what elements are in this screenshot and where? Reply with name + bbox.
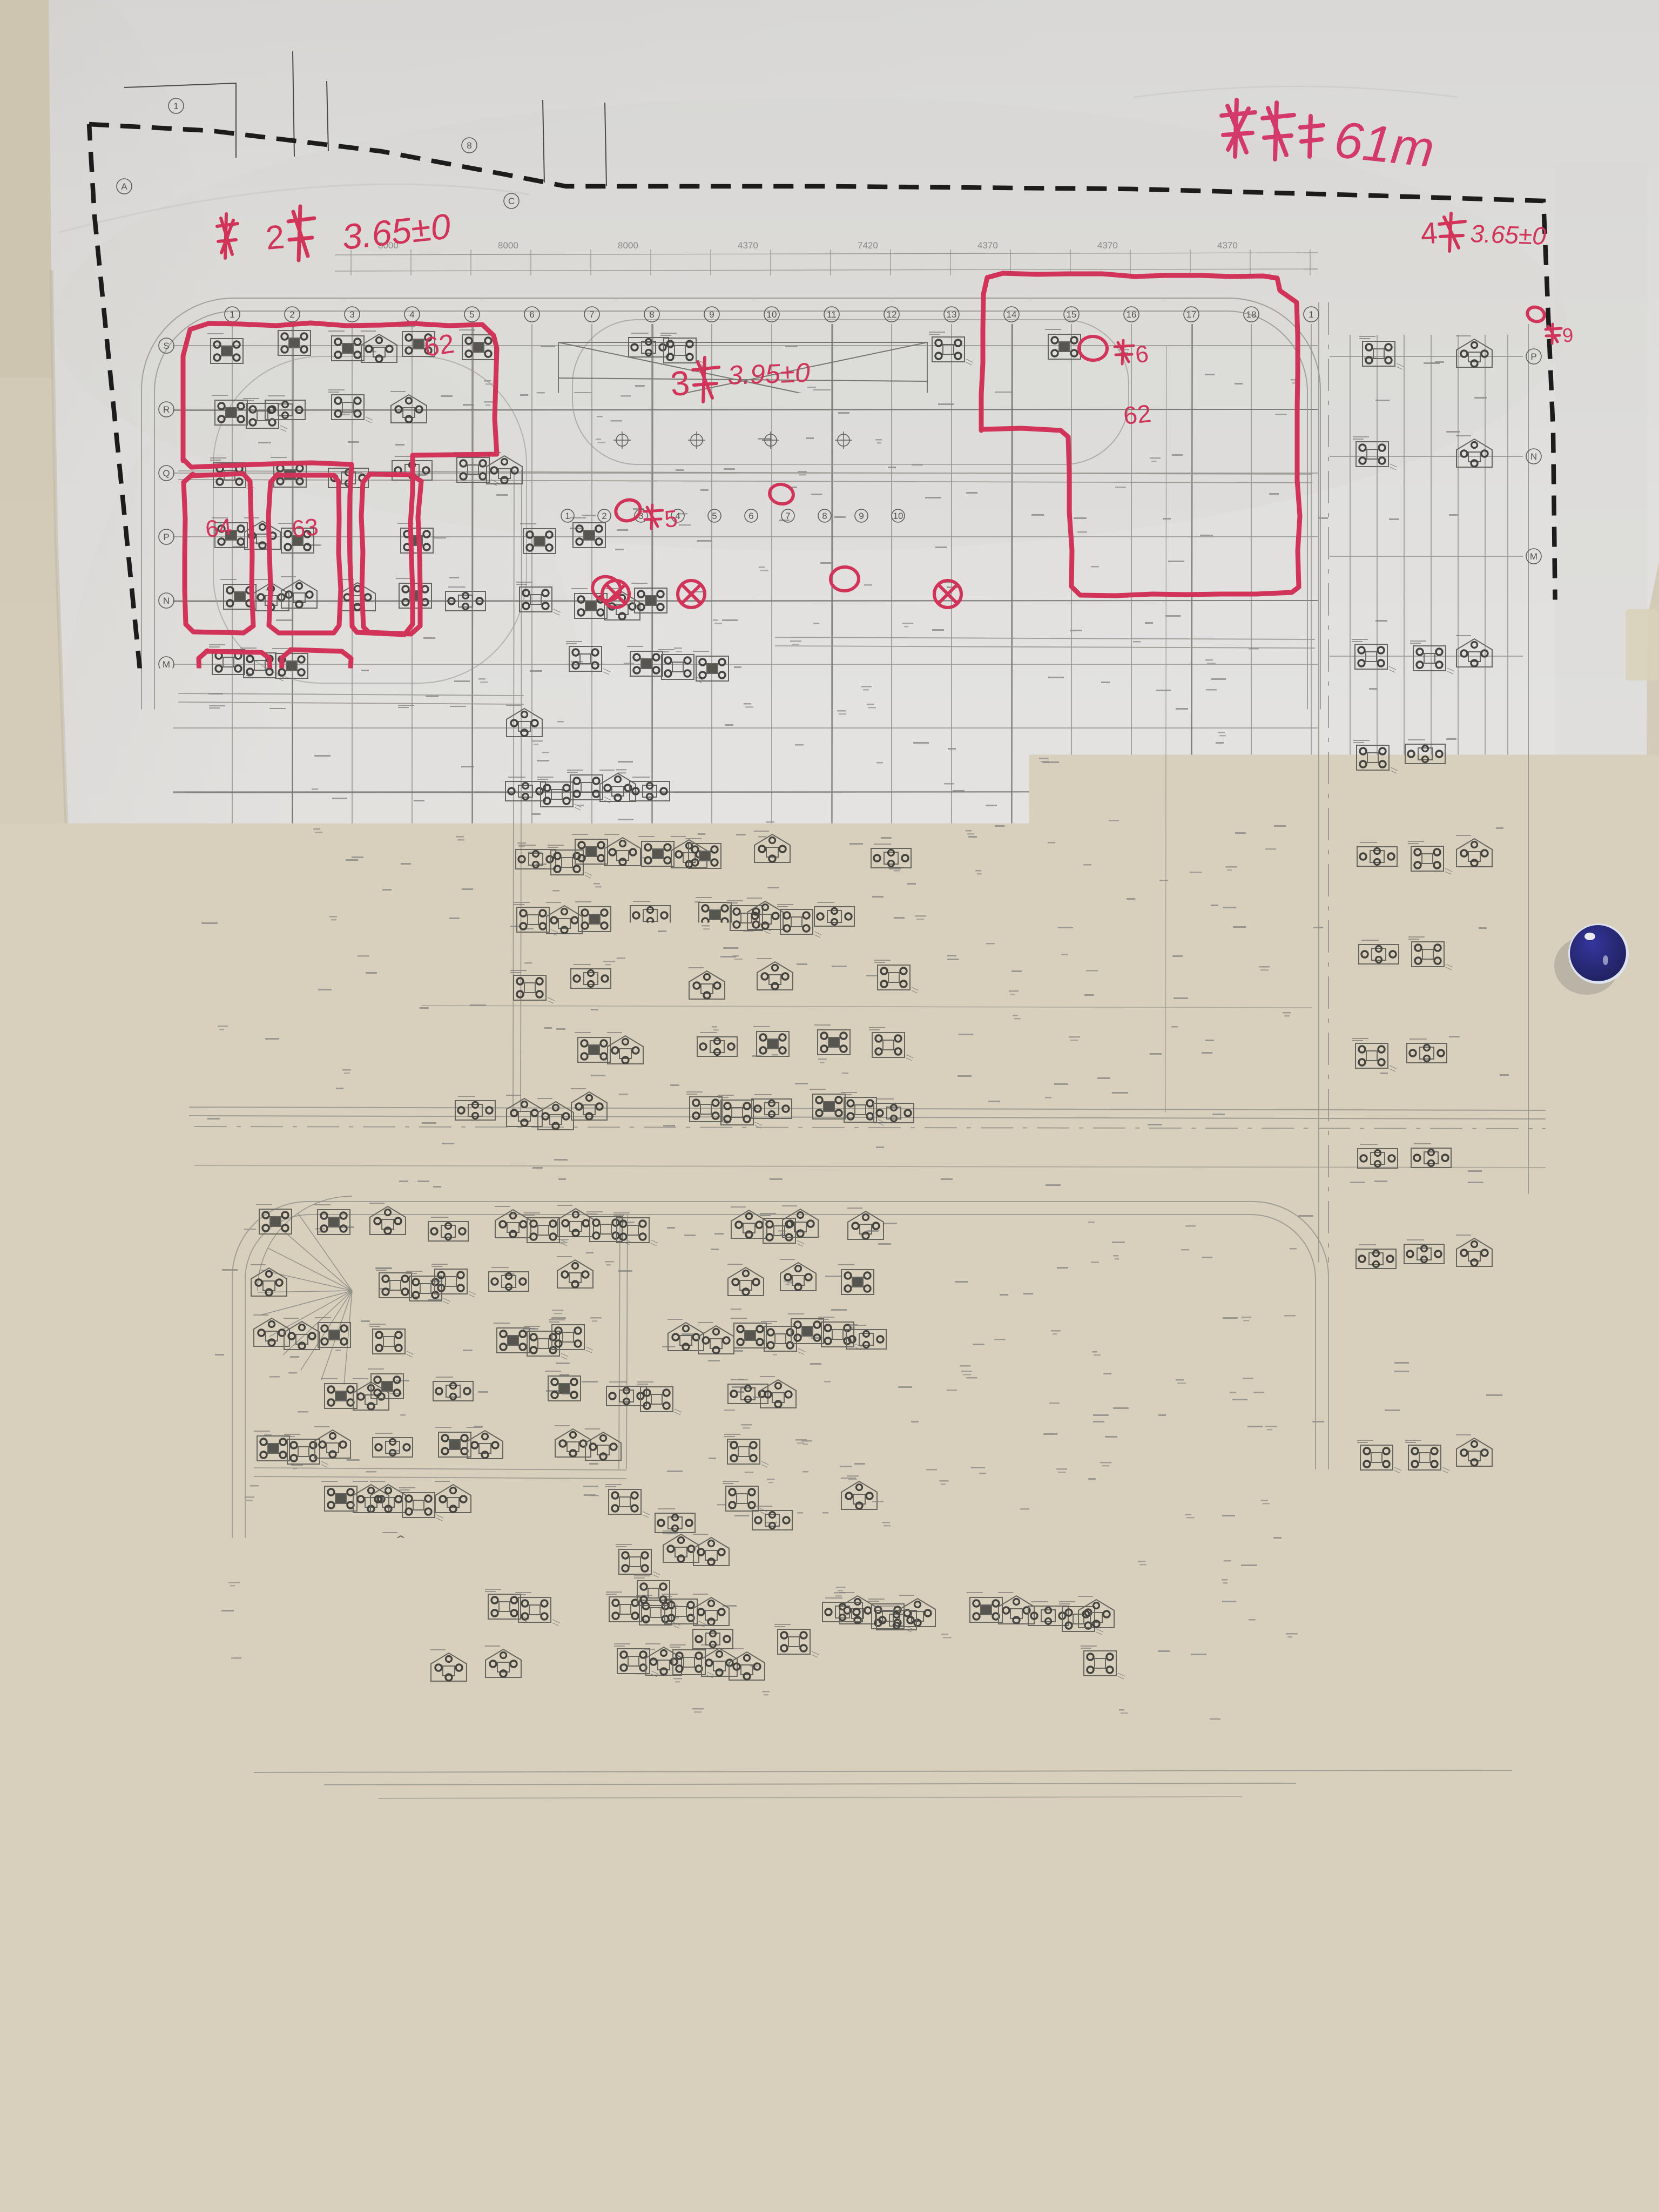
svg-text:127: 127 [875, 1617, 901, 1637]
svg-text:2: 2 [264, 218, 286, 257]
svg-text:1.6: 1.6 [748, 1636, 770, 1655]
svg-text:6: 6 [529, 309, 534, 320]
svg-text:9: 9 [1562, 324, 1575, 347]
svg-text:63: 63 [217, 694, 244, 722]
svg-text:3.65±0: 3.65±0 [413, 1151, 496, 1184]
svg-text:63: 63 [1141, 1343, 1171, 1374]
svg-text:7: 7 [624, 1757, 629, 1767]
svg-text:R: R [163, 404, 170, 415]
svg-text:L: L [1531, 651, 1536, 662]
svg-text:H: H [1530, 951, 1537, 961]
svg-text:5: 5 [720, 1668, 725, 1678]
svg-text:L: L [164, 723, 168, 733]
svg-text:1: 1 [565, 511, 570, 521]
svg-text:7: 7 [785, 511, 790, 521]
svg-text:K: K [1530, 751, 1537, 761]
svg-text:63: 63 [463, 1616, 490, 1642]
svg-text:18: 18 [1246, 309, 1257, 320]
svg-text:12: 12 [928, 1475, 938, 1486]
svg-text:12: 12 [887, 309, 897, 320]
svg-text:A: A [121, 181, 127, 192]
svg-text:18: 18 [1271, 1205, 1282, 1215]
svg-text:9: 9 [897, 1668, 902, 1678]
svg-text:8: 8 [467, 140, 471, 151]
svg-text:R: R [1530, 1451, 1537, 1461]
svg-text:3.65±0: 3.65±0 [1470, 219, 1547, 250]
svg-text:10: 10 [939, 1668, 949, 1678]
svg-text:64: 64 [850, 1259, 879, 1289]
svg-text:K: K [163, 787, 170, 797]
svg-text:5: 5 [473, 1757, 477, 1767]
svg-text:62: 62 [422, 328, 456, 362]
svg-text:M: M [238, 1496, 246, 1507]
svg-text:M: M [1530, 551, 1537, 562]
svg-text:63: 63 [650, 1265, 679, 1294]
svg-text:4: 4 [409, 309, 414, 320]
svg-text:H: H [239, 1717, 245, 1727]
svg-text:10: 10 [767, 309, 777, 320]
svg-text:11: 11 [784, 1130, 793, 1141]
svg-text:E: E [1530, 1251, 1536, 1261]
svg-text:8000: 8000 [498, 240, 518, 251]
svg-text:3.95±0: 3.95±0 [727, 358, 811, 390]
svg-text:P: P [1530, 352, 1536, 362]
svg-text:4370: 4370 [977, 240, 998, 251]
svg-text:5: 5 [475, 1130, 480, 1141]
svg-text:10.6: 10.6 [530, 1608, 558, 1626]
svg-text:3: 3 [1052, 1181, 1066, 1205]
svg-text:5: 5 [663, 505, 679, 533]
svg-text:4: 4 [833, 838, 848, 865]
svg-text:62: 62 [1122, 399, 1152, 430]
svg-text:C: C [508, 196, 515, 206]
svg-text:10.6: 10.6 [496, 1641, 525, 1660]
svg-text:15: 15 [1095, 1205, 1105, 1215]
svg-text:Q: Q [163, 468, 170, 478]
svg-text:10.6: 10.6 [345, 1675, 374, 1695]
svg-text:10: 10 [893, 511, 903, 521]
svg-text:6: 6 [548, 1757, 553, 1767]
svg-text:3: 3 [669, 363, 691, 403]
svg-text:N: N [1530, 451, 1537, 462]
svg-text:Q: Q [1530, 1550, 1537, 1561]
svg-text:2: 2 [332, 1205, 336, 1215]
svg-text:62: 62 [381, 1346, 412, 1377]
svg-text:R: R [239, 1276, 245, 1286]
svg-text:8: 8 [699, 1757, 704, 1767]
svg-text:b8: b8 [663, 1629, 681, 1648]
svg-text:M: M [163, 659, 170, 670]
svg-text:3.8±0: 3.8±0 [786, 1696, 855, 1730]
svg-text:7420: 7420 [858, 240, 878, 251]
svg-text:17: 17 [1212, 1205, 1223, 1215]
svg-text:4: 4 [676, 1668, 680, 1678]
svg-text:62: 62 [295, 694, 322, 722]
svg-text:2: 2 [289, 309, 294, 320]
svg-text:10.8: 10.8 [844, 1617, 872, 1635]
svg-text:P: P [239, 1386, 245, 1397]
svg-text:7: 7 [589, 309, 594, 320]
svg-text:7: 7 [1476, 1594, 1490, 1618]
svg-text:62m: 62m [1043, 824, 1092, 855]
svg-text:2: 2 [854, 1522, 867, 1545]
svg-text:7: 7 [808, 1668, 813, 1678]
svg-text:2: 2 [319, 1130, 324, 1141]
svg-text:8: 8 [853, 1668, 858, 1678]
svg-text:Q: Q [238, 1331, 245, 1341]
svg-text:5: 5 [469, 309, 474, 320]
svg-text:J: J [164, 851, 169, 861]
svg-text:1: 1 [230, 309, 234, 320]
svg-text:6: 6 [764, 1668, 769, 1678]
svg-text:S: S [163, 341, 169, 351]
svg-text:P: P [1530, 1650, 1536, 1661]
svg-text:15: 15 [1067, 309, 1077, 320]
svg-text:4370: 4370 [1217, 240, 1238, 251]
svg-text:27: 27 [1275, 1670, 1285, 1681]
svg-text:2: 2 [602, 511, 606, 521]
svg-text:10.4: 10.4 [1281, 1587, 1310, 1605]
svg-text:4370: 4370 [1097, 240, 1118, 251]
svg-text:N: N [239, 1441, 245, 1452]
svg-text:J: J [1532, 851, 1536, 861]
svg-text:62: 62 [1070, 1596, 1096, 1622]
svg-text:62: 62 [274, 868, 302, 896]
svg-text:4: 4 [1419, 215, 1438, 251]
svg-text:12: 12 [835, 1130, 846, 1141]
svg-text:10: 10 [732, 1130, 742, 1141]
svg-text:1: 1 [173, 101, 178, 111]
svg-text:16: 16 [1154, 1205, 1164, 1215]
svg-text:4: 4 [397, 1757, 402, 1767]
svg-text:3: 3 [390, 1205, 395, 1215]
svg-text:64: 64 [204, 514, 233, 543]
svg-text:10.6: 10.6 [1180, 1600, 1208, 1618]
svg-text:4: 4 [449, 1205, 454, 1215]
svg-text:3: 3 [631, 1668, 636, 1678]
svg-text:K: K [239, 1607, 245, 1617]
svg-text:9: 9 [709, 309, 714, 320]
svg-text:8000: 8000 [618, 240, 638, 251]
svg-text:S: S [239, 1221, 245, 1231]
svg-text:14: 14 [1007, 309, 1017, 320]
svg-text:8: 8 [822, 511, 827, 521]
svg-text:1: 1 [267, 1130, 272, 1141]
svg-text:S: S [1530, 1351, 1536, 1361]
svg-text:4370: 4370 [738, 240, 758, 251]
svg-text:16: 16 [1127, 309, 1137, 320]
svg-text:G: G [1530, 1051, 1537, 1061]
svg-text:63: 63 [291, 514, 320, 543]
svg-text:E: E [163, 1105, 169, 1116]
svg-text:62: 62 [635, 824, 667, 855]
svg-text:4: 4 [423, 1130, 428, 1141]
svg-text:6: 6 [748, 511, 753, 521]
svg-text:8: 8 [649, 309, 654, 320]
svg-text:F: F [1531, 1151, 1536, 1161]
svg-text:61m: 61m [1332, 111, 1437, 178]
svg-text:13: 13 [947, 309, 957, 320]
svg-text:1: 1 [320, 1672, 334, 1697]
svg-text:9: 9 [682, 1130, 687, 1141]
svg-text:1: 1 [619, 1480, 624, 1490]
svg-text:10.5: 10.5 [704, 1628, 733, 1648]
svg-text:62m: 62m [325, 1521, 369, 1547]
svg-text:17: 17 [1186, 309, 1197, 320]
svg-text:7: 7 [578, 1130, 583, 1141]
svg-text:9: 9 [859, 511, 864, 521]
svg-text:5: 5 [712, 511, 717, 521]
svg-text:8: 8 [1446, 1375, 1460, 1400]
svg-text:19: 19 [1036, 1691, 1046, 1702]
svg-text:P: P [163, 532, 169, 542]
svg-text:6: 6 [1134, 341, 1150, 368]
svg-text:J: J [240, 1662, 245, 1672]
svg-text:1: 1 [273, 1205, 278, 1215]
svg-text:F: F [164, 1042, 169, 1052]
svg-text:L: L [239, 1552, 244, 1562]
svg-text:3: 3 [321, 1757, 326, 1767]
svg-text:11: 11 [827, 309, 837, 320]
svg-text:3: 3 [349, 309, 354, 320]
svg-text:6: 6 [527, 1130, 531, 1141]
svg-text:5: 5 [508, 1205, 513, 1215]
svg-text:13: 13 [977, 1205, 987, 1215]
svg-text:1: 1 [1309, 309, 1313, 320]
svg-text:N: N [163, 596, 170, 606]
